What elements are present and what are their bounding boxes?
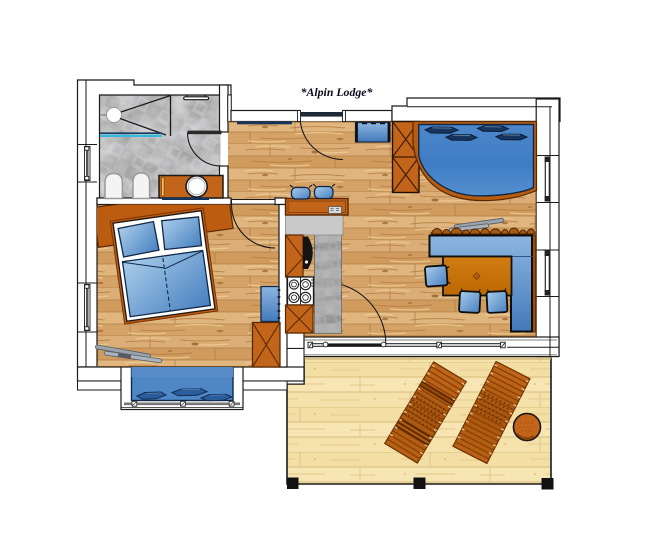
svg-text:*Alpin Lodge*: *Alpin Lodge* [301,85,373,99]
